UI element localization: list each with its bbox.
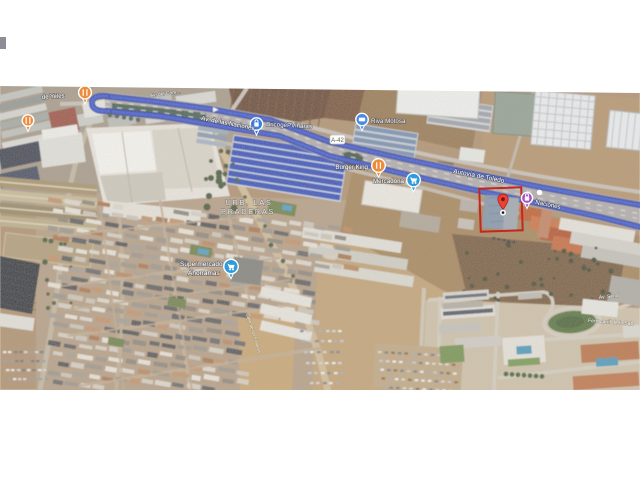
svg-text:Supermercado: Supermercado: [180, 261, 223, 268]
svg-text:URB. LAS: URB. LAS: [226, 198, 273, 207]
svg-text:Riva Motosa: Riva Motosa: [371, 118, 406, 125]
svg-text:PRADERAS: PRADERAS: [221, 207, 275, 216]
svg-text:A-42: A-42: [331, 138, 344, 144]
svg-text:Ahorramas: Ahorramas: [188, 270, 221, 277]
svg-text:Burger King: Burger King: [335, 164, 368, 171]
svg-text:Mercadona: Mercadona: [373, 178, 405, 185]
